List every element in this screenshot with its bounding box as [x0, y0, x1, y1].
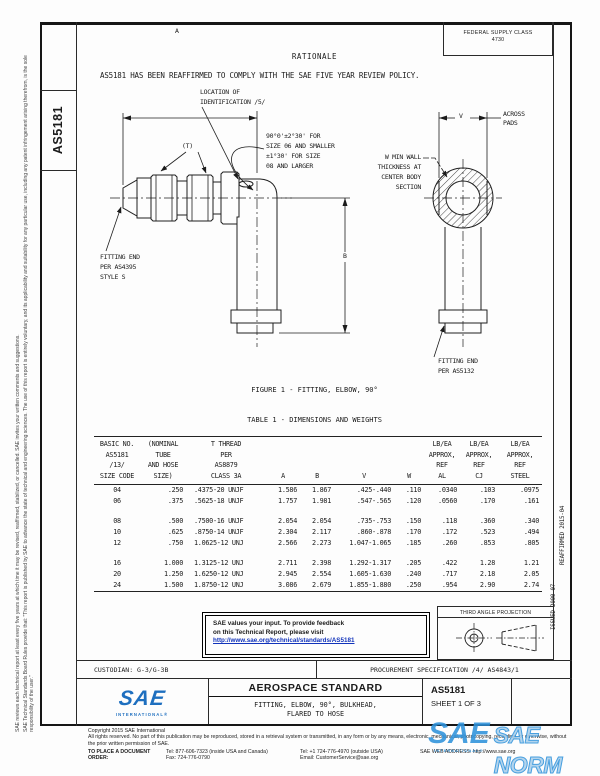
cell-a: 3.086	[266, 580, 300, 592]
projection-label: THIRD ANGLE PROJECTION	[438, 607, 553, 618]
cell-thread: 1.8750-12 UNJ	[186, 580, 266, 592]
cell-nominal: 1.000	[140, 558, 186, 569]
document-page: SAE Technical Standards Board Rules prov…	[0, 0, 600, 776]
cell-weight-al: .717	[424, 569, 460, 580]
left-margin-disclaimer-2: SAE reviews each technical report at lea…	[15, 37, 21, 732]
cell-v: 1.292-1.317	[334, 558, 394, 569]
cell-thread: .4375-20 UNJF	[186, 485, 266, 497]
cell-size-code: 20	[94, 569, 140, 580]
cell-weight-steel: .0975	[498, 485, 542, 497]
col-size-code: BASIC NO. AS5181 /13/ SIZE CODE	[94, 437, 140, 485]
feedback-line-1: SAE values your input. To provide feedba…	[213, 620, 426, 629]
cell-b: 2.273	[300, 538, 334, 558]
doc-number-vertical: AS5181	[40, 90, 76, 170]
cell-b: 2.554	[300, 569, 334, 580]
order-label: TO PLACE A DOCUMENT ORDER:	[88, 749, 166, 762]
cell-thread: .8750-14 UNJF	[186, 527, 266, 538]
cell-w: .120	[394, 496, 424, 516]
col-thread: T THREAD PER AS8879 CLASS 3A	[186, 437, 266, 485]
cell-nominal: 1.500	[140, 580, 186, 592]
cell-weight-steel: .340	[498, 516, 542, 527]
feedback-line-2: on this Technical Report, please visit	[213, 629, 426, 638]
cell-weight-al: .954	[424, 580, 460, 592]
table-row: 16 1.000 1.3125-12 UNJ 2.711 2.398 1.292…	[94, 558, 542, 569]
cell-nominal: 1.250	[140, 569, 186, 580]
fitting-end-left-note: FITTING END PER AS4395 STYLE S	[100, 252, 140, 282]
cell-weight-cj: .170	[460, 496, 498, 516]
t-label: (T)	[182, 142, 193, 152]
sae-logo-subtext: INTERNATIONAL®	[116, 712, 168, 717]
cell-b: 2.117	[300, 527, 334, 538]
col-w: W	[394, 437, 424, 485]
cell-v: 1.855-1.880	[334, 580, 394, 592]
cell-nominal: .750	[140, 538, 186, 558]
col-nominal: (NOMINAL TUBE AND HOSE SIZE)	[140, 437, 186, 485]
col-weight-steel: LB/EA APPROX, REF STEEL	[498, 437, 542, 485]
table-row: 20 1.250 1.6250-12 UNJ 2.945 2.554 1.605…	[94, 569, 542, 580]
cell-nominal: .250	[140, 485, 186, 497]
rationale-title: RATIONALE	[76, 52, 553, 61]
cell-b: 2.054	[300, 516, 334, 527]
table-row: 24 1.500 1.8750-12 UNJ 3.086 2.679 1.855…	[94, 580, 542, 592]
cell-nominal: .500	[140, 516, 186, 527]
table-header: BASIC NO. AS5181 /13/ SIZE CODE (NOMINAL…	[94, 437, 542, 485]
cell-a: 2.054	[266, 516, 300, 527]
standard-title-cell: AEROSPACE STANDARD FITTING, ELBOW, 90°, …	[208, 678, 423, 724]
custodian-cell: CUSTODIAN: G-3/G-3B	[76, 660, 317, 678]
cell-weight-steel: .805	[498, 538, 542, 558]
cell-b: 1.867	[300, 485, 334, 497]
dim-a-label: A	[174, 27, 180, 37]
wall-thickness-note: W MIN WALL THICKNESS AT CENTER BODY SECT…	[355, 152, 421, 192]
feedback-url-link[interactable]: http://www.sae.org/technical/standards/A…	[213, 637, 426, 646]
cell-v: 1.605-1.630	[334, 569, 394, 580]
cell-w: .170	[394, 527, 424, 538]
cell-w: .150	[394, 516, 424, 527]
cell-a: 2.566	[266, 538, 300, 558]
cell-thread: 1.6250-12 UNJ	[186, 569, 266, 580]
table-row: 08 .500 .7500-16 UNJF 2.054 2.054 .735-.…	[94, 516, 542, 527]
col-b: B	[300, 437, 334, 485]
cell-weight-al: .172	[424, 527, 460, 538]
cell-thread: 1.3125-12 UNJ	[186, 558, 266, 569]
cell-weight-cj: 2.90	[460, 580, 498, 592]
cell-nominal: .375	[140, 496, 186, 516]
cell-v: .547-.565	[334, 496, 394, 516]
cell-size-code: 10	[94, 527, 140, 538]
sheet-number: SHEET 1 OF 3	[431, 699, 511, 708]
cell-thread: .7500-16 UNJF	[186, 516, 266, 527]
rights-line: All rights reserved. No part of this pub…	[88, 734, 570, 747]
docnum-box-bottom-line	[40, 170, 76, 171]
cell-w: .205	[394, 558, 424, 569]
cell-a: 2.945	[266, 569, 300, 580]
cell-size-code: 04	[94, 485, 140, 497]
cell-b: 1.981	[300, 496, 334, 516]
cell-nominal: .625	[140, 527, 186, 538]
cell-weight-steel: .161	[498, 496, 542, 516]
federal-supply-class-box: FEDERAL SUPPLY CLASS 4730	[443, 22, 553, 56]
third-angle-symbol	[438, 618, 553, 658]
col-v: V	[334, 437, 394, 485]
footer-block: Copyright 2015 SAE International All rig…	[88, 728, 570, 761]
order-row: TO PLACE A DOCUMENT ORDER: Tel: 877-606-…	[88, 749, 570, 762]
sae-logo-cell: SAE INTERNATIONAL®	[76, 678, 208, 724]
cell-a: 2.711	[266, 558, 300, 569]
cell-size-code: 12	[94, 538, 140, 558]
cell-w: .250	[394, 580, 424, 592]
fitting-end-right-note: FITTING END PER AS5132	[438, 356, 478, 376]
cell-weight-al: .0340	[424, 485, 460, 497]
feedback-box: SAE values your input. To provide feedba…	[205, 615, 427, 655]
cell-weight-cj: .103	[460, 485, 498, 497]
dim-v-label: V	[458, 112, 464, 122]
table-row: 12 .750 1.0625-12 UNJ 2.566 2.273 1.047-…	[94, 538, 542, 558]
cell-size-code: 06	[94, 496, 140, 516]
table-row: 04 .250 .4375-20 UNJF 1.586 1.867 .425-.…	[94, 485, 542, 497]
empty-cell	[512, 678, 572, 724]
document-title: FITTING, ELBOW, 90°, BULKHEAD, FLARED TO…	[209, 701, 422, 719]
cell-v: .425-.440	[334, 485, 394, 497]
cell-a: 1.586	[266, 485, 300, 497]
doc-number-cell: AS5181 SHEET 1 OF 3	[423, 678, 512, 724]
cell-weight-steel: 1.21	[498, 558, 542, 569]
cell-v: .860-.878	[334, 527, 394, 538]
cell-weight-cj: .523	[460, 527, 498, 538]
fsc-label: FEDERAL SUPPLY CLASS	[444, 30, 552, 37]
cell-weight-cj: .360	[460, 516, 498, 527]
cell-weight-cj: .853	[460, 538, 498, 558]
cell-weight-steel: 2.74	[498, 580, 542, 592]
sae-logo: SAE	[117, 687, 167, 711]
email-address: Email: CustomerService@sae.org	[300, 755, 420, 761]
aerospace-standard-heading: AEROSPACE STANDARD	[209, 679, 422, 697]
cell-weight-al: .422	[424, 558, 460, 569]
cell-size-code: 24	[94, 580, 140, 592]
fsc-value: 4730	[444, 37, 552, 44]
cell-size-code: 16	[94, 558, 140, 569]
cell-size-code: 08	[94, 516, 140, 527]
cell-weight-al: .0560	[424, 496, 460, 516]
callout-location-id: LOCATION OF IDENTIFICATION /5/	[200, 88, 265, 107]
table-title: TABLE 1 - DIMENSIONS AND WEIGHTS	[76, 416, 553, 425]
cell-a: 2.304	[266, 527, 300, 538]
cell-a: 1.757	[266, 496, 300, 516]
doc-number: AS5181	[431, 685, 511, 696]
table-row: 06 .375 .5625-18 UNJF 1.757 1.981 .547-.…	[94, 496, 542, 516]
cell-b: 2.679	[300, 580, 334, 592]
cell-thread: .5625-18 UNJF	[186, 496, 266, 516]
cell-thread: 1.0625-12 UNJ	[186, 538, 266, 558]
callout-angle-note: 90°0'±2°30' FOR SIZE 06 AND SMALLER ±1°3…	[266, 131, 335, 171]
cell-w: .185	[394, 538, 424, 558]
col-weight-al: LB/EA APPROX, REF AL	[424, 437, 460, 485]
table-row: 10 .625 .8750-14 UNJF 2.304 2.117 .860-.…	[94, 527, 542, 538]
cell-weight-cj: 2.18	[460, 569, 498, 580]
col-a: A	[266, 437, 300, 485]
cell-weight-steel: 2.05	[498, 569, 542, 580]
cell-weight-cj: 1.28	[460, 558, 498, 569]
fax-number: Fax: 724-776-0790	[166, 755, 300, 761]
across-pads-label: ACROSS PADS	[503, 110, 525, 127]
rationale-body: AS5181 HAS BEEN REAFFIRMED TO COMPLY WIT…	[100, 71, 419, 80]
figure-caption: FIGURE 1 - FITTING, ELBOW, 90°	[76, 386, 553, 395]
cell-v: 1.047-1.065	[334, 538, 394, 558]
cell-weight-steel: .494	[498, 527, 542, 538]
projection-box: THIRD ANGLE PROJECTION	[437, 606, 554, 660]
dimensions-table: BASIC NO. AS5181 /13/ SIZE CODE (NOMINAL…	[94, 436, 542, 592]
left-margin-disclaimer-1: SAE Technical Standards Board Rules prov…	[23, 37, 35, 732]
dim-b-label: B	[342, 252, 348, 262]
cell-w: .110	[394, 485, 424, 497]
cell-v: .735-.753	[334, 516, 394, 527]
web-address: SAE WEB ADDRESS: http://www.sae.org	[420, 749, 515, 762]
cell-weight-al: .260	[424, 538, 460, 558]
procurement-spec-cell: PROCUREMENT SPECIFICATION /4/ AS4843/1	[317, 660, 572, 678]
col-weight-cj: LB/EA APPROX, REF CJ	[460, 437, 498, 485]
cell-weight-al: .118	[424, 516, 460, 527]
cell-w: .240	[394, 569, 424, 580]
cell-b: 2.398	[300, 558, 334, 569]
